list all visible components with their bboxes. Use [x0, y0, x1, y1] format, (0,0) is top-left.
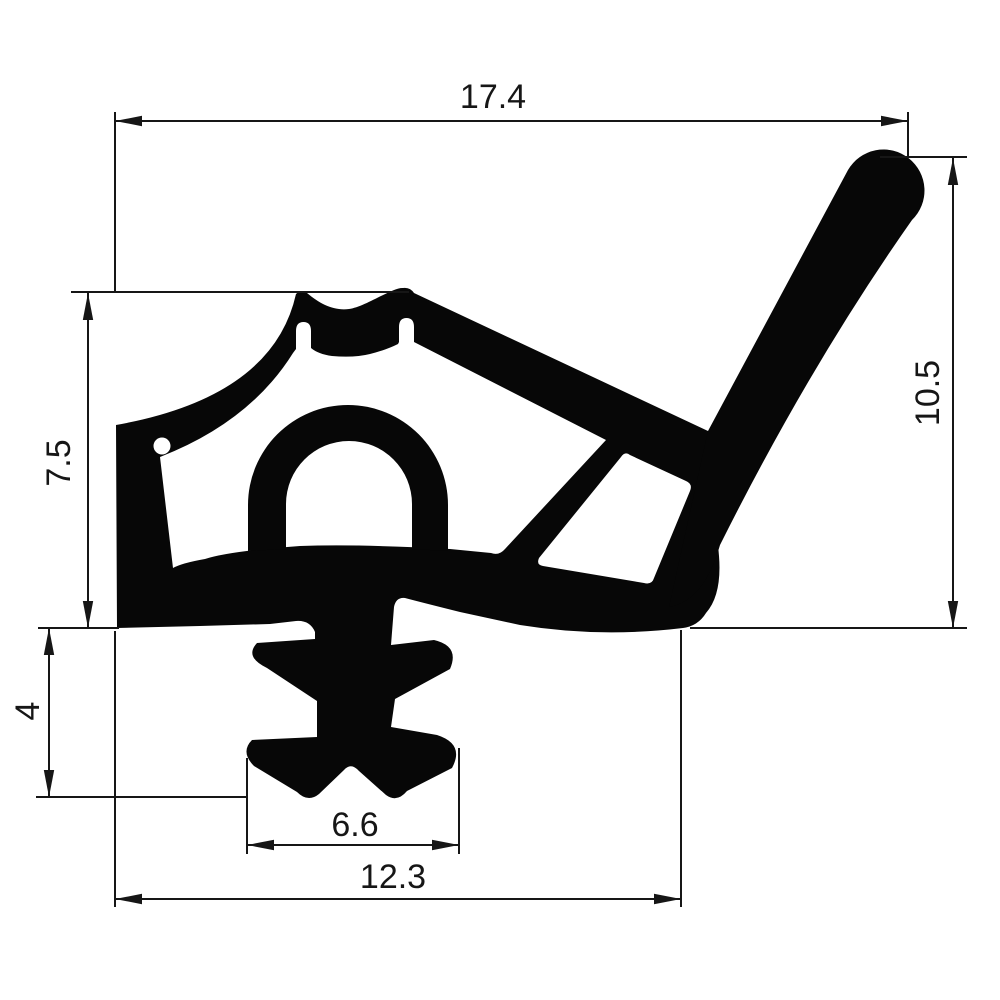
dimension-label-right-height: 10.5	[909, 360, 947, 426]
arrowhead-right	[654, 894, 681, 904]
arrowhead-bottom	[83, 601, 93, 628]
arrowhead-left	[247, 840, 274, 850]
arrowhead-top	[948, 158, 958, 185]
vent-hole-dot	[154, 438, 171, 455]
dim-top-width: 17.4	[115, 78, 908, 292]
technical-drawing-canvas: 17.4 10.5 7.5 4	[0, 0, 1000, 1000]
dimension-label-bottom-width: 12.3	[360, 858, 426, 896]
dimension-label-top-width: 17.4	[460, 78, 526, 116]
arrowhead-bottom	[948, 601, 958, 628]
seal-profile	[116, 150, 924, 799]
arrowhead-top	[44, 628, 54, 655]
seal-profile-drawing: 17.4 10.5 7.5 4	[0, 0, 1000, 1000]
dim-anchor-height: 4	[9, 628, 247, 797]
arrowhead-right	[432, 840, 459, 850]
arrowhead-top	[83, 293, 93, 320]
dimension-label-left-height: 7.5	[40, 439, 78, 486]
dimension-label-anchor-tip-width: 6.6	[331, 806, 378, 844]
arrowhead-right	[881, 116, 908, 126]
arrowhead-left	[115, 116, 142, 126]
profile-arm-and-ball	[669, 150, 924, 607]
dimension-label-anchor-height: 4	[9, 702, 47, 721]
arrowhead-left	[115, 894, 142, 904]
arrowhead-bottom	[44, 770, 54, 797]
